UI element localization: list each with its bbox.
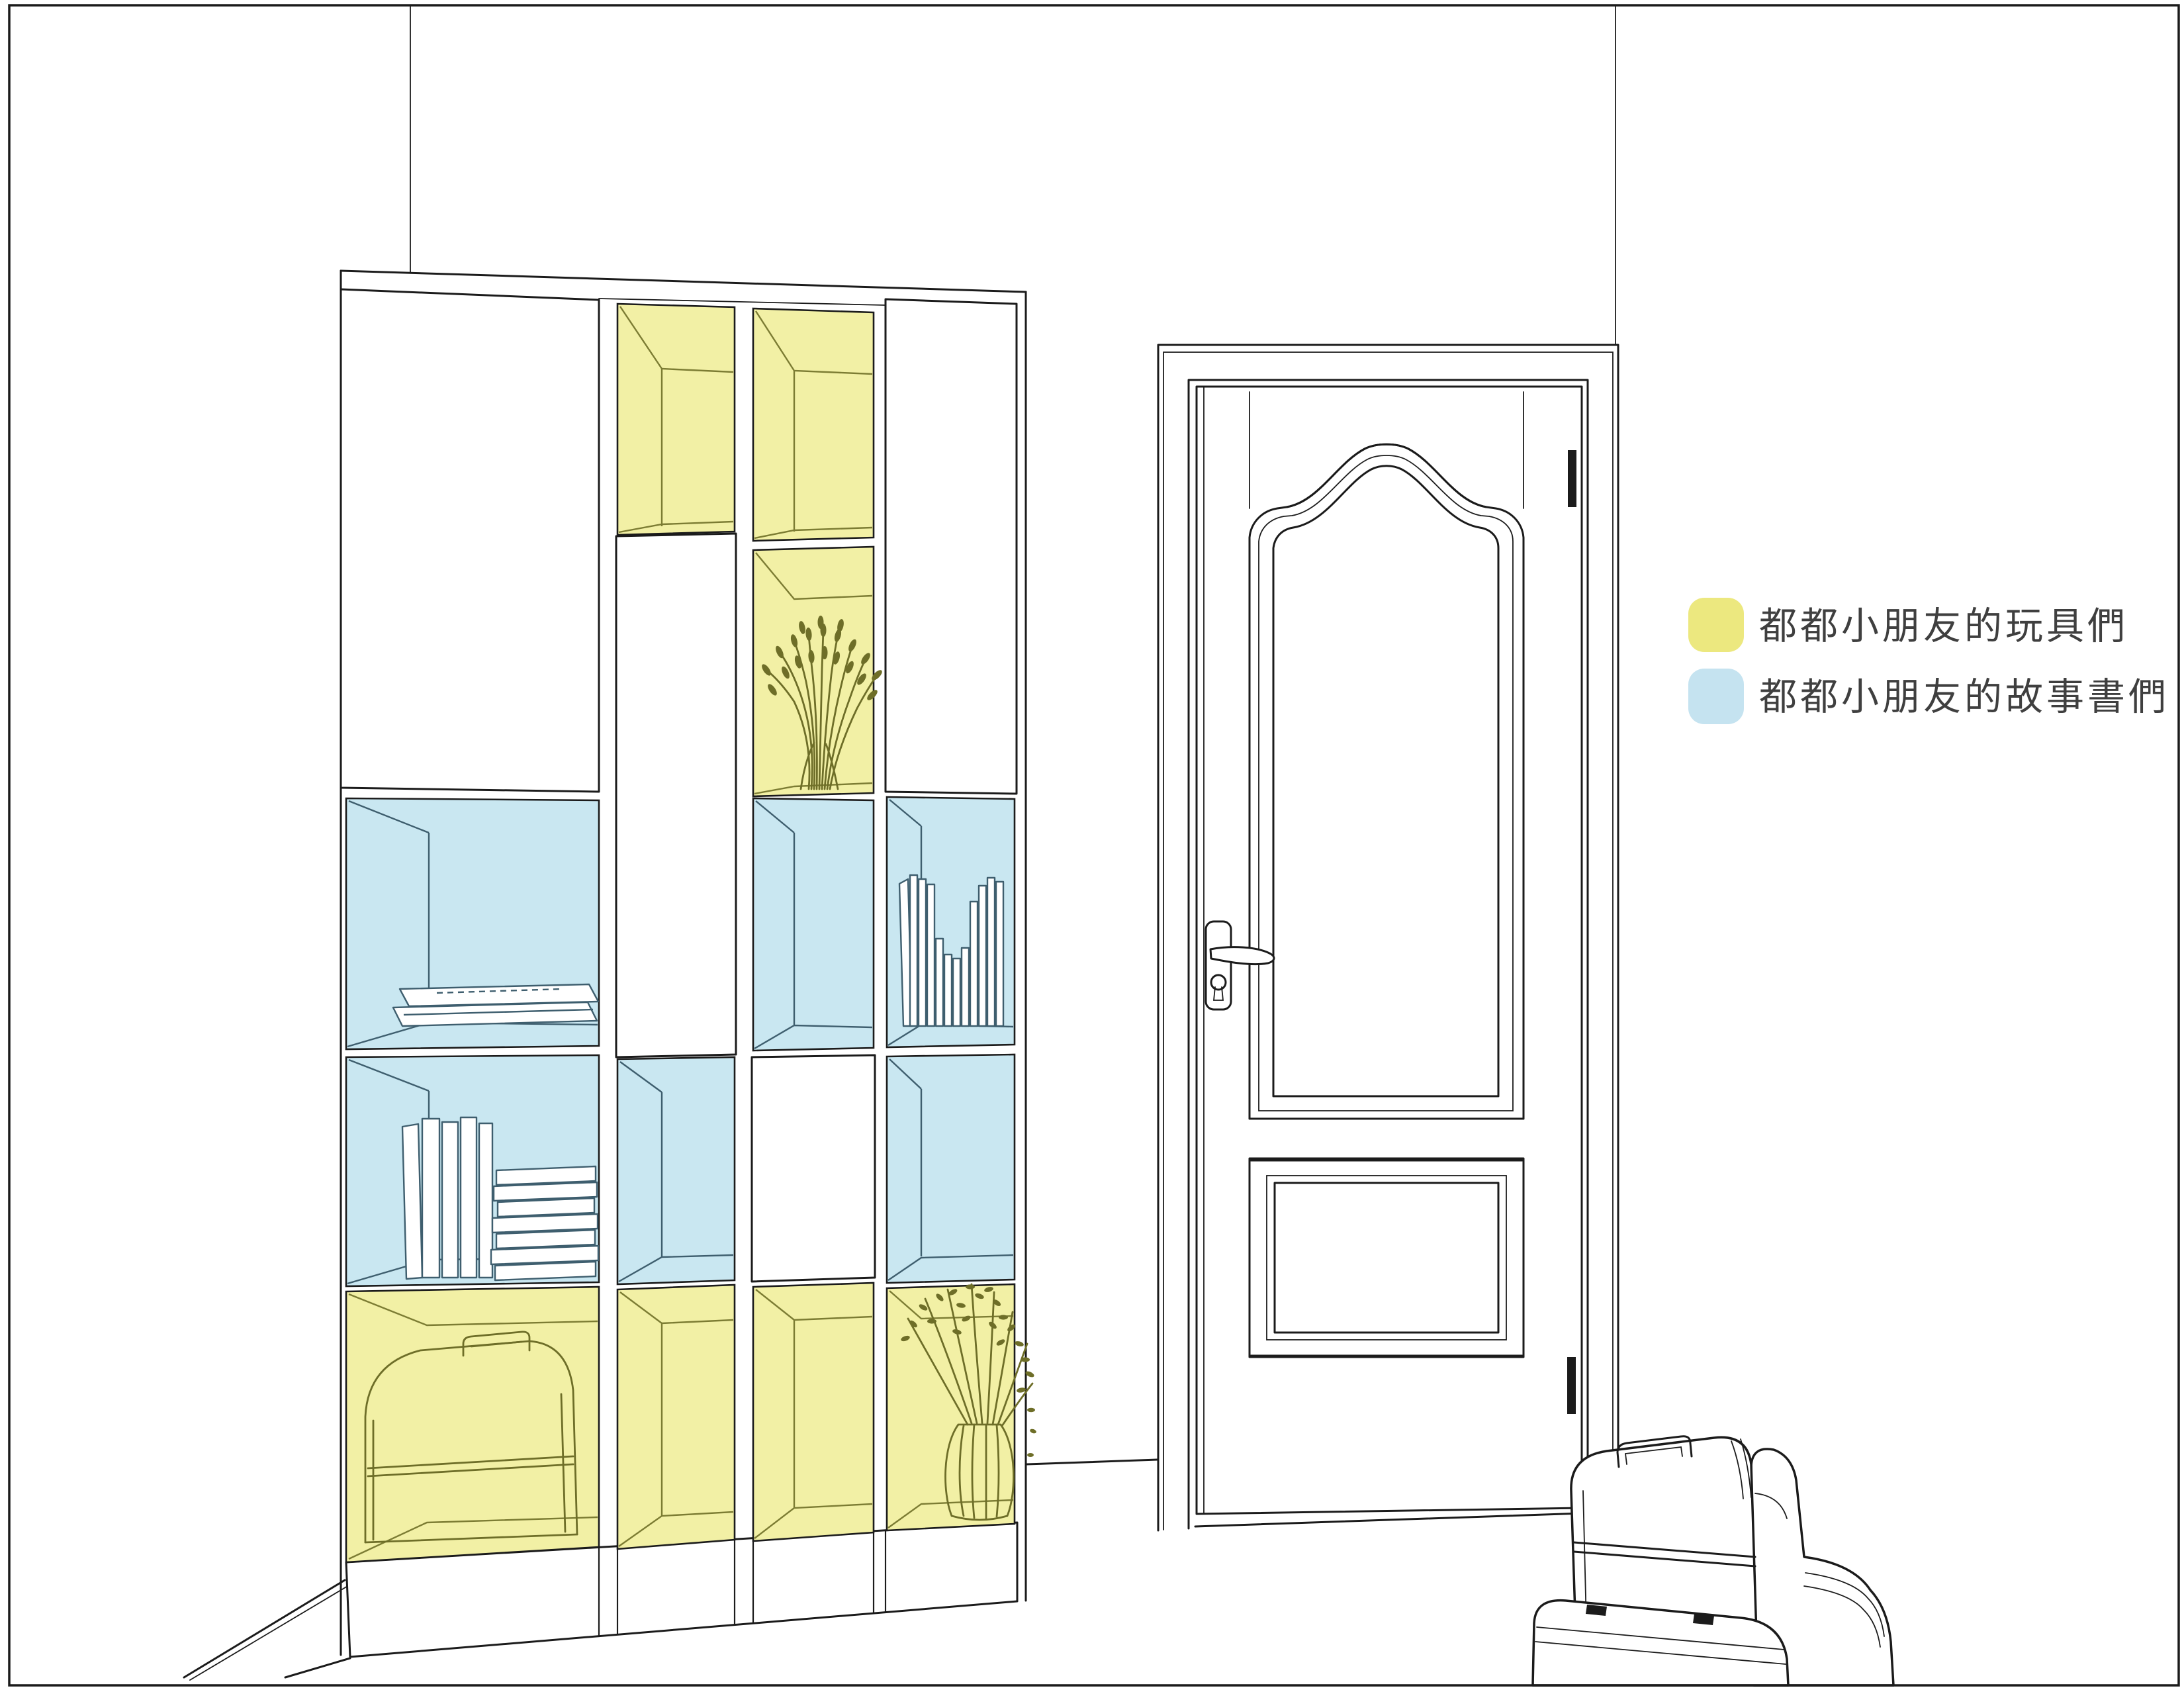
compartment-books-4 (753, 798, 874, 1051)
hinge-bottom (1567, 1357, 1576, 1414)
compartment-toys-chest (346, 1287, 599, 1562)
compartment-toys-bouquet (753, 547, 884, 796)
legend-swatch-toys (1688, 598, 1744, 652)
latch (1693, 1614, 1714, 1625)
book-spine (953, 959, 960, 1026)
compartment-toys-top-2 (753, 308, 874, 541)
column-3 (752, 308, 884, 1541)
page-border (9, 5, 2179, 1685)
floor-corner-diagonal (184, 1580, 345, 1677)
compartment-toys-empty-1 (617, 1285, 735, 1549)
handle-escutcheon (1206, 921, 1231, 1009)
column-4 (886, 299, 1037, 1530)
door-panel-middle (616, 534, 736, 1057)
door-panel-small (752, 1055, 875, 1282)
door-leaf (1197, 387, 1582, 1514)
book-spine (422, 1119, 439, 1278)
column-1 (341, 289, 599, 1562)
door-panel-large (341, 289, 599, 792)
legend-swatch-storybooks (1688, 669, 1744, 724)
compartment-books-5 (887, 797, 1015, 1047)
door (1158, 345, 1618, 1530)
latch (1586, 1605, 1607, 1616)
legend-label-storybooks: 都都小朋友的故事書們 (1759, 676, 2169, 718)
book-spine (910, 875, 917, 1026)
stacked-book (496, 1230, 595, 1248)
cabinet-top-edge (341, 271, 1026, 292)
column-2 (616, 304, 736, 1549)
compartment-toys-top (617, 304, 735, 535)
book-spine (442, 1122, 458, 1278)
compartment-books-6 (887, 1055, 1015, 1283)
skirting-diagonal (285, 1658, 350, 1677)
compartment-toys-empty-2 (753, 1283, 874, 1541)
compartment-books-3 (617, 1057, 735, 1284)
book-spine (927, 884, 934, 1026)
stacked-book (495, 1262, 596, 1280)
book-spine (919, 879, 926, 1026)
book-spine (979, 886, 986, 1026)
room-elevation-drawing: 都都小朋友的玩具們 都都小朋友的故事書們 (0, 0, 2184, 1688)
compartment-books-1 (346, 798, 599, 1049)
legend: 都都小朋友的玩具們 都都小朋友的故事書們 (1688, 598, 2169, 724)
book-spine (936, 939, 943, 1026)
book-spine (962, 948, 969, 1026)
book-spine (970, 902, 978, 1026)
book-spine (944, 955, 952, 1026)
door-panel-right (886, 299, 1017, 794)
compartment-toys-plant (887, 1284, 1037, 1530)
interior-elevation-page: 都都小朋友的玩具們 都都小朋友的故事書們 (0, 0, 2184, 1688)
keyhole (1211, 975, 1226, 990)
skirting-line-gap (1027, 1460, 1158, 1464)
vertical-books (402, 1117, 492, 1279)
compartment-books-2 (346, 1055, 599, 1286)
bookshelf (341, 271, 1037, 1657)
book-spine (402, 1124, 422, 1279)
legend-label-toys: 都都小朋友的玩具們 (1759, 605, 2128, 647)
hinge-top (1568, 450, 1576, 507)
room-walls (410, 7, 1615, 345)
flat-book (400, 984, 598, 1006)
stacked-book (498, 1198, 594, 1217)
horizontal-book-stack (491, 1166, 598, 1280)
luggage-stack (1533, 1436, 1893, 1685)
flat-book-stack (393, 984, 598, 1026)
book-spine (996, 882, 1003, 1026)
book-spine (461, 1117, 477, 1278)
book-spine (987, 878, 995, 1026)
floor-line-doorway (1195, 1513, 1583, 1526)
